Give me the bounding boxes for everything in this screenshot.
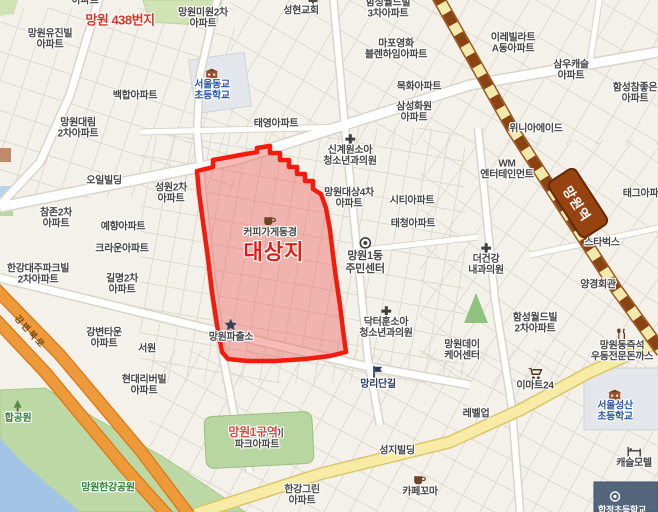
poi-seouldonggyo-elementary[interactable]: 서울동교초등학교 [194,68,230,103]
label-text: 성원2차 [155,183,187,194]
poi-taeyoung-apt[interactable]: 태영아파트 [254,118,299,129]
label-text: 망원미원2차 [178,8,228,19]
label-text: 초등학교 [597,412,633,423]
police-star-icon [225,319,237,331]
label-text: 백합아파트 [113,90,158,101]
poi-levelup[interactable]: 레벨업 [463,408,490,419]
label-text: 강변북로 [12,313,47,350]
label-text: 아파트 [131,386,158,397]
label-text: 아파트 [72,0,99,7]
label-text: 이마트24 [516,380,553,391]
label-text: 함성참좋은 [613,83,658,94]
label-text: 아파트 [37,40,64,51]
road-gangbyeon-bukro: 강변북로 [12,313,47,350]
label-text: 아파트 [289,496,316,507]
coffee-cup-icon [264,215,277,226]
label-text: 서울동교 [194,80,230,91]
utensils-icon [616,329,628,340]
poi-hangang-green-apt[interactable]: 한강그린아파트 [284,485,320,508]
subway-entrance-icon-hapjeong [610,491,621,503]
school-building-icon [205,68,218,79]
label-text: 레벨업 [463,408,490,419]
label-text: 커피가게동경 [243,227,296,238]
annotation-daesangji: 대상지 [244,241,305,265]
label-text: 아파트 [336,199,363,210]
label-text: 위니아에이드 [509,123,562,134]
poi-samsung-hwawon-apt[interactable]: 삼성화원아파트 [396,102,432,125]
label-text: 망원 438번지 [85,14,154,29]
label-text: 닥터훈소아 [364,317,409,328]
label-text: 아파트 [622,94,649,105]
coffee-cup-icon [413,474,426,485]
label-text: 망원1구역 [228,426,277,440]
poi-mangwon-police-box[interactable]: 망원파출소 [209,319,254,343]
map-canvas[interactable]: 아파트망원 438번지망원유진빌아파트망원미원2차아파트성현교회함성월드빌3차아… [0,0,658,512]
label-text: 신계원소아 [328,145,373,156]
poi-wm-entertainment[interactable]: WM엔터테인먼트 [480,159,533,182]
school-building-icon [608,389,621,400]
label-text: 청소년과의원 [323,157,376,168]
poi-seongji-building[interactable]: 성지빌딩 [379,445,415,456]
label-text: 합정초등학교 [598,505,646,512]
poi-baekhap-apt[interactable]: 백합아파트 [113,90,158,101]
poi-hangang-daeju-parkbil-2cha-apt[interactable]: 한강대주파크빌2차아파트 [7,264,69,287]
flag-icon [372,366,383,378]
shopping-cart-icon [528,368,542,379]
label-text: 태청아파트 [391,218,436,229]
label-text: 아파트 [109,285,136,296]
poi-jeukseok-udon-donkkaseu[interactable]: 망원동즉석우동전문돈까스 [591,329,653,364]
poi-seowon[interactable]: 서원 [138,343,156,354]
poi-tag-apt[interactable]: 태그아파트 [623,188,658,199]
poi-hamseong-worldbil-3cha-apt[interactable]: 함성월드빌3차아파트 [366,0,411,20]
label-text: 목화아파트 [397,81,442,92]
label-text: 망원동즉석 [600,341,645,352]
poi-seonghyeon-church[interactable]: 성현교회 [283,5,319,16]
label-text: 아파트 [558,71,585,82]
label-text: 망원데이 [444,340,480,351]
label-text: 망리단길 [360,379,396,390]
poi-mangnidangil[interactable]: 망리단길 [360,366,396,390]
poi-hamseong-chamjoeun-apt[interactable]: 함성참좋은아파트 [613,83,658,106]
label-text: 길명2차 [106,274,138,285]
label-text: 청소년과의원 [359,329,412,340]
label-text: 시티아파트 [390,195,435,206]
label-text: 함성월드빌 [513,313,558,324]
poi-mangwon1dong-community-center[interactable]: 망원1동주민센터 [345,237,384,275]
poi-hap-park[interactable]: 합공원 [5,400,32,424]
bed-icon [627,447,641,457]
label-text: 서원 [138,343,156,354]
poi-seongwon-2cha-apt[interactable]: 성원2차아파트 [155,183,187,206]
label-text: 대상지 [244,241,305,265]
label-text: 더건강 [473,254,500,265]
label-text: 망원한강공원 [81,482,134,493]
label-text: 오일빌딩 [86,175,122,186]
label-text: 망원대림 [60,118,96,129]
label-text: WM [498,159,515,170]
annotation-mangwon-438: 망원 438번지 [85,14,154,29]
poi-doctorhun-pediatric-clinic[interactable]: 닥터훈소아청소년과의원 [359,306,412,340]
medical-cross-icon [345,134,355,144]
label-text: 크라운아파트 [95,243,148,254]
label-text: 한강그린 [284,485,320,496]
poi-singyewon-pediatric-clinic[interactable]: 신계원소아청소년과의원 [323,134,376,168]
label-text: 성지빌딩 [379,445,415,456]
poi-deogeongang-clinic[interactable]: 더건강내과의원 [468,243,504,277]
label-text: 예향아파트 [101,221,146,232]
label-text: 초등학교 [194,91,230,102]
label-text: 성현교회 [283,5,319,16]
fragment-apartment-top: 아파트 [72,0,99,7]
label-text: 엔터테인먼트 [480,170,533,181]
poi-mangwon-yujinbil-apt[interactable]: 망원유진빌아파트 [28,29,73,52]
medical-cross-icon [381,306,391,316]
label-text: 망원대상4차 [324,188,374,199]
label-text: 삼성화원 [396,102,432,113]
label-text: 스타벅스 [584,237,620,248]
poi-oil-building[interactable]: 오일빌딩 [86,175,122,186]
label-layer: 아파트망원 438번지망원유진빌아파트망원미원2차아파트성현교회함성월드빌3차아… [0,0,658,512]
label-text: 마포영화 [378,39,414,50]
label-text: 이레빌라트 [491,33,536,44]
poi-yanggyeong-hoegwan[interactable]: 양경회관 [580,279,616,290]
poi-gilmyeong-2cha-apt[interactable]: 길명2차아파트 [106,274,138,297]
poi-mangwon-daerim-2cha-apt[interactable]: 망원대림2차아파트 [58,118,99,141]
label-text: 우동전문돈까스 [591,352,653,363]
label-text: 참존2차 [40,208,72,219]
label-text: 블렌하임아파트 [365,50,427,61]
label-text: 한강대주파크빌 [7,264,69,275]
poi-samwoo-castle-apt[interactable]: 삼우캐슬아파트 [553,60,589,83]
label-text: A동아파트 [492,44,535,55]
label-text: 망원1동 [347,250,382,263]
poi-winia-aid[interactable]: 위니아에이드 [509,123,562,134]
poi-coffee-donggyeong[interactable]: 커피가게동경 [243,215,296,238]
label-text: 2차아파트 [515,324,556,335]
poi-seoulseongsan-elementary[interactable]: 서울성산초등학교 [597,389,633,424]
label-text: 캐슬모텔 [616,458,652,469]
poi-gangbyeon-town-apt[interactable]: 강변타운아파트 [86,328,122,351]
poi-starbucks[interactable]: 스타벅스 [584,237,620,248]
annotation-mangwon1-guyeok: 망원1구역 [228,426,277,440]
label-text: 아파트 [401,113,428,124]
poi-irebillart-adong-apt[interactable]: 이레빌라트A동아파트 [491,33,536,56]
label-text: 서울성산 [597,401,633,412]
label-text: 케어센터 [444,351,480,362]
label-text: 현대리버빌 [122,375,167,386]
poi-taecheong-apt[interactable]: 태청아파트 [391,218,436,229]
label-text: 아파트 [190,19,217,30]
tree-icon [13,400,23,412]
poi-mapo-yeonghwa-blenheim-apt[interactable]: 마포영화블렌하임아파트 [365,39,427,62]
poi-hapjeong-elementary-partial[interactable]: 합정초등학교 [598,505,646,512]
label-text: 아파트 [43,219,70,230]
poi-city-apt[interactable]: 시티아파트 [390,195,435,206]
label-text: 아파트 [91,339,118,350]
poi-mangwon-miwon-2cha-apt[interactable]: 망원미원2차아파트 [178,8,228,31]
poi-mangwonday-care-center[interactable]: 망원데이케어센터 [444,340,480,363]
label-text: 태영아파트 [254,118,299,129]
label-text: 태그아파트 [623,188,658,199]
label-text: 망원파출소 [209,332,254,343]
label-text: 망원유진빌 [28,29,73,40]
label-text: 파크아파트 [235,440,280,451]
medical-cross-icon [481,243,491,253]
poi-crown-apt[interactable]: 크라운아파트 [95,243,148,254]
gov-office-icon [359,237,371,249]
label-text: 2차아파트 [58,129,99,140]
poi-mangwon-daesang-4cha-apt[interactable]: 망원대상4차아파트 [324,188,374,211]
poi-mangwon-hangang-park[interactable]: 망원한강공원 [81,482,134,493]
poi-hyundai-riverbil-apt[interactable]: 현대리버빌아파트 [122,375,167,398]
subway-entrance-icon [610,491,621,502]
label-text: 양경회관 [580,279,616,290]
label-text: 합공원 [5,413,32,424]
label-text: 카페꼬마 [402,486,438,497]
poi-cafe-kkoma[interactable]: 카페꼬마 [402,474,438,497]
poi-yehyang-apt[interactable]: 예향아파트 [101,221,146,232]
label-text: 2차아파트 [18,275,59,286]
label-text: 강변타운 [86,328,122,339]
poi-chamjon-2cha-apt[interactable]: 참존2차아파트 [40,208,72,231]
label-text: 삼우캐슬 [553,60,589,71]
label-text: 내과의원 [468,266,504,277]
label-text: 3차아파트 [368,9,409,20]
poi-emart24[interactable]: 이마트24 [516,368,553,391]
label-text: 아파트 [158,194,185,205]
label-text: 주민센터 [345,263,384,276]
poi-castle-motel[interactable]: 캐슬모텔 [616,447,652,469]
poi-hamseong-worldbil-2cha-apt[interactable]: 함성월드빌2차아파트 [513,313,558,336]
poi-mokhwa-apt[interactable]: 목화아파트 [397,81,442,92]
